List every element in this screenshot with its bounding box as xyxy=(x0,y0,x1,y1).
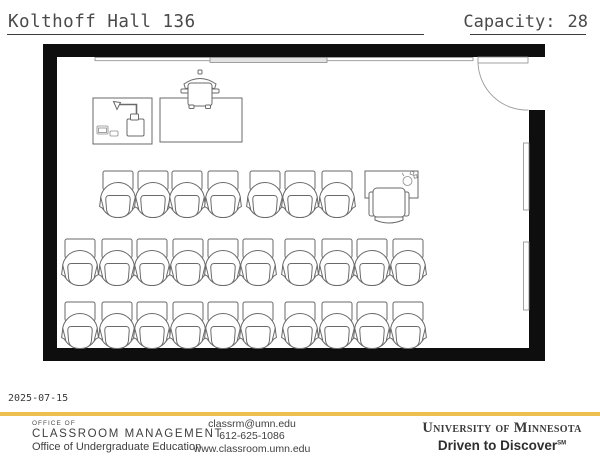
student-tablet-arm-chair xyxy=(134,302,171,349)
student-tablet-arm-chair xyxy=(99,302,136,349)
student-tablet-arm-chair xyxy=(282,302,319,349)
student-tablet-arm-chair xyxy=(100,171,137,218)
contact-phone: 612-625-1086 xyxy=(172,430,332,442)
service-mark: SM xyxy=(557,441,566,447)
wall-right xyxy=(529,110,545,361)
tagline-text: Driven to Discover xyxy=(438,438,557,453)
student-tablet-arm-chair xyxy=(62,302,99,349)
university-wordmark: University of Minnesota xyxy=(421,420,583,437)
contact-email[interactable]: classrm@umn.edu xyxy=(172,418,332,430)
student-tablet-arm-chair xyxy=(62,239,99,286)
umn-brand-block: University of Minnesota Driven to Discov… xyxy=(421,420,583,453)
student-tablet-arm-chair xyxy=(282,171,319,218)
student-tablet-arm-chair xyxy=(319,302,356,349)
door-leaf xyxy=(478,57,528,63)
student-tablet-arm-chair xyxy=(205,239,242,286)
student-tablet-arm-chair xyxy=(319,239,356,286)
student-tablet-arm-chair xyxy=(354,239,391,286)
door-swing-arc xyxy=(478,63,529,110)
whiteboard-right-1 xyxy=(524,143,530,210)
student-tablet-arm-chair xyxy=(205,302,242,349)
student-tablet-arm-chair xyxy=(282,239,319,286)
projection-screen xyxy=(210,58,327,63)
whiteboard-right-2 xyxy=(524,242,530,310)
door xyxy=(478,57,529,110)
wall-left xyxy=(43,44,57,361)
student-tablet-arm-chair xyxy=(205,171,242,218)
accent-divider xyxy=(0,412,600,416)
student-tablet-arm-chair xyxy=(99,239,136,286)
contact-website[interactable]: www.classroom.umn.edu xyxy=(172,443,332,455)
university-tagline: Driven to DiscoverSM xyxy=(421,438,583,453)
student-tablet-arm-chair xyxy=(247,171,284,218)
student-tablet-arm-chair xyxy=(170,239,207,286)
student-tablet-arm-chair xyxy=(169,171,206,218)
student-tablet-arm-chair xyxy=(390,302,427,349)
student-tablet-arm-chair xyxy=(390,239,427,286)
floor-plan-drawing xyxy=(0,0,600,464)
student-tablet-arm-chair xyxy=(240,239,277,286)
student-tablet-arm-chair xyxy=(134,239,171,286)
plot-date: 2025-07-15 xyxy=(8,393,68,404)
wall-top xyxy=(43,44,545,57)
student-tablet-arm-chair xyxy=(240,302,277,349)
floor-plan-page: Kolthoff Hall 136 Capacity: 28 xyxy=(0,0,600,464)
demo-area xyxy=(93,70,242,144)
wall-bottom xyxy=(43,348,545,361)
student-tablet-arm-chair xyxy=(354,302,391,349)
student-tablet-arm-chair xyxy=(135,171,172,218)
contact-block: classrm@umn.edu 612-625-1086 www.classro… xyxy=(172,418,332,455)
student-tablet-arm-chair xyxy=(319,171,356,218)
instructor-chair xyxy=(369,188,409,223)
student-tablet-arm-chair xyxy=(170,302,207,349)
instructor-station xyxy=(365,171,418,223)
